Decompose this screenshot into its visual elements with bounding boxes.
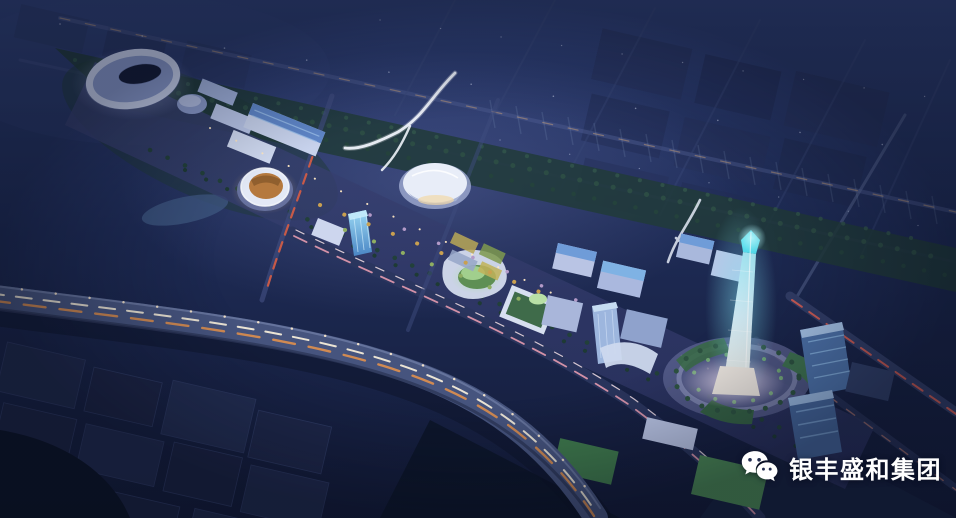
vignette: [0, 0, 956, 518]
watermark-brand-text: 银丰盛和集团: [789, 450, 942, 485]
city-night-rendering: [0, 0, 956, 518]
wechat-icon: [740, 449, 780, 486]
watermark: 银丰盛和集团: [740, 449, 942, 486]
rendering-canvas: 银丰盛和集团: [0, 0, 956, 518]
